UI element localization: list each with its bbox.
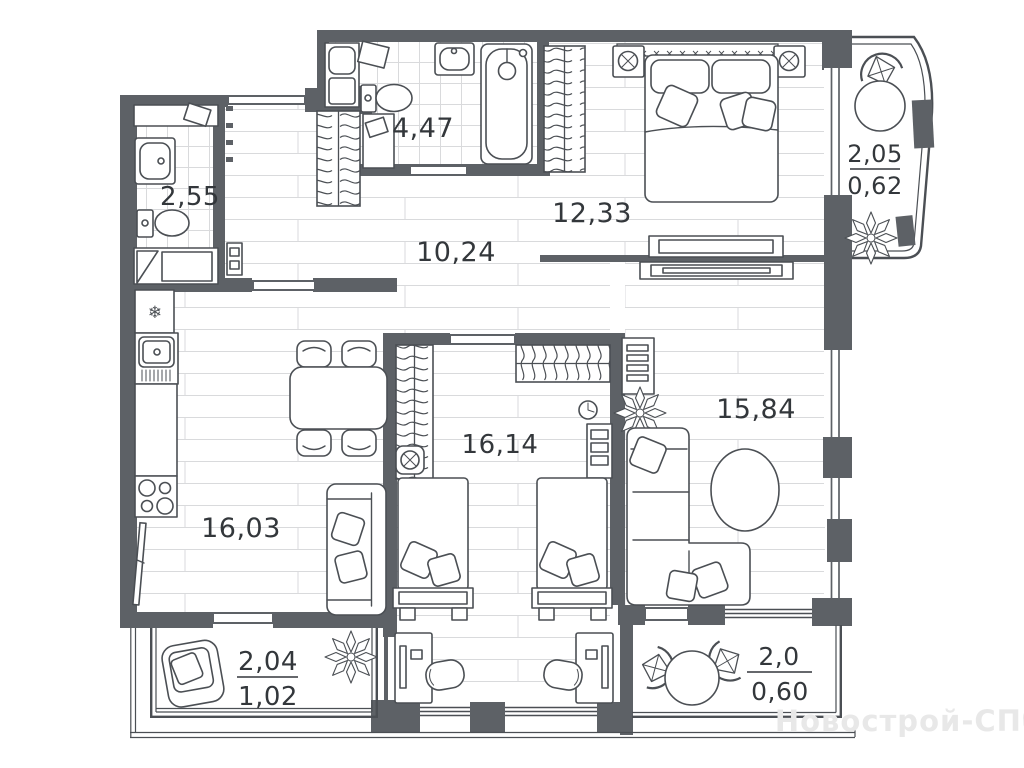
radiator-icon (227, 243, 242, 275)
bathroom-area-label: 4,47 (392, 113, 454, 144)
stove-icon (135, 476, 177, 517)
kitchen-door (253, 281, 315, 290)
coat-rack-icon (317, 111, 360, 206)
ceiling-light-icon (396, 446, 424, 474)
living-balcony-door (645, 608, 688, 620)
loggia-area-full: 2,05 (847, 140, 902, 168)
living-bottom-glazing (725, 605, 812, 623)
fridge-icon: ❄ (135, 290, 174, 333)
living-area-label: 15,84 (716, 394, 796, 425)
bathtub-icon (481, 44, 532, 164)
clock-icon (579, 401, 597, 419)
single-bed-icon (393, 478, 473, 620)
balcony-table-icon (665, 651, 719, 705)
chair-icon (297, 341, 331, 367)
nightstand-icon (613, 46, 644, 77)
shelf-icon (622, 338, 654, 394)
hallway-area-label: 10,24 (416, 237, 496, 268)
kitchen-sink-icon (135, 333, 178, 384)
children-area-label: 16,14 (462, 430, 539, 460)
chair-icon (342, 430, 376, 456)
chair-icon (342, 341, 376, 367)
toilet-icon (137, 210, 189, 237)
ottoman-icon (711, 449, 779, 531)
counter-icon (135, 384, 177, 476)
snowflake-icon: ❄ (148, 303, 162, 323)
kitchen-area-label: 16,03 (201, 513, 281, 544)
loggia-area-reduced: 1,02 (238, 682, 298, 712)
washing-machine-icon (325, 43, 359, 107)
balcony-table-icon (855, 81, 905, 131)
sink-icon (135, 138, 175, 184)
tv-stand-icon (640, 262, 793, 279)
wc-area-label: 2,55 (160, 182, 220, 212)
floor-plan: ❄ (0, 0, 1024, 768)
plant-icon (845, 212, 897, 264)
wardrobe-icon (516, 345, 610, 382)
children-room-windows (420, 702, 597, 733)
wardrobe-icon (544, 46, 585, 172)
dresser-icon (649, 236, 783, 257)
entrance-door (228, 96, 305, 104)
loggia-area-full: 2,0 (758, 642, 799, 671)
kitchen-balcony-door (213, 613, 273, 623)
loggia-area-reduced: 0,62 (847, 172, 902, 200)
cabinet-icon (363, 114, 394, 168)
sofa-icon (327, 484, 386, 615)
bedroom-area-label: 12,33 (552, 198, 632, 229)
toilet-icon (361, 85, 412, 113)
desk-icon (395, 633, 432, 703)
plant-icon (325, 631, 377, 683)
watermark: Новострой-СПб (775, 704, 1024, 738)
loggia-area-reduced: 0,60 (751, 677, 809, 706)
single-bed-icon (532, 478, 612, 620)
sink-icon (435, 43, 474, 75)
cabinet-icon (134, 248, 218, 284)
chair-icon (297, 430, 331, 456)
armchair-icon (160, 638, 226, 709)
children-room-door (450, 335, 515, 344)
bathroom-door (410, 166, 467, 175)
shelf-icon (587, 424, 612, 478)
desk-icon (576, 633, 613, 703)
double-bed-icon (645, 55, 778, 202)
loggia-area-full: 2,04 (238, 647, 298, 677)
